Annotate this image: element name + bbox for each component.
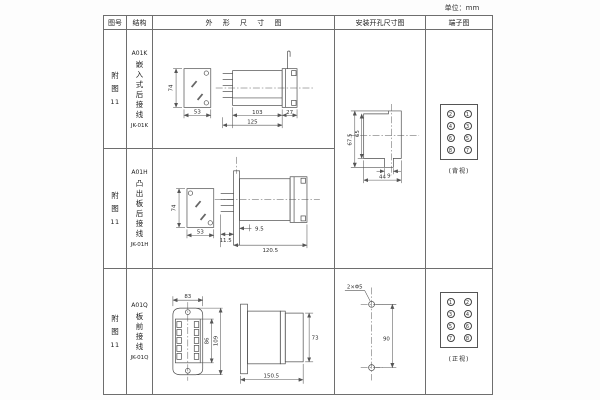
dim-outer-height: 67.5 [347,134,353,146]
dim-front-width: 53 [194,109,201,115]
structure-label: 嵌入式后接线 [135,60,144,120]
dim-front-width: 53 [197,229,204,235]
outline-drawing-a01h: 74 53 9.5 11.5 [153,149,334,268]
terminal-cell-front-wiring: 1 2 3 4 5 6 7 8 (正视) [426,269,492,394]
model-label: A01H [131,169,147,176]
fig-char: 图 [111,85,119,93]
fig-char: 附 [111,72,119,80]
terminal-cell-rear-wiring: 2 1 4 3 6 5 8 7 (背视) [426,30,492,269]
header-cell-fig-no: 图号 [104,16,127,30]
row-a01h-fig-cell: 附 图 11 [104,149,127,269]
unit-label: 单位：mm [428,3,496,13]
terminal-view-label: (背视) [449,166,470,175]
header-outline-label: 外 形 尺 寸 图 [206,18,286,28]
row-a01h-outline-cell: 74 53 9.5 11.5 [153,149,335,269]
terminal-pin: 4 [447,122,455,130]
header-cell-terminal: 端子图 [426,16,492,30]
terminal-pin: 3 [464,122,472,130]
terminal-pin: 4 [464,310,472,318]
dim-total-width: 44 [379,175,386,181]
terminal-view-label: (正视) [449,354,470,363]
row-a01q-structure-cell: A01Q 板前接线 JK-01Q [127,269,153,394]
fig-number: 附 图 11 [110,192,119,226]
code-label: JK-01H [131,242,149,248]
structure-label: 凸出板后接线 [135,179,144,239]
dim-front-height: 74 [172,204,178,211]
header-cell-outline: 外 形 尺 寸 图 [153,16,335,30]
terminal-pin: 7 [464,146,472,154]
dim-front-width: 83 [184,294,191,300]
dim-inner-height: 65 [355,130,361,137]
dim-front-height: 74 [169,84,175,91]
mounting-hole-drawing-rear: 67.5 65 9 44 [335,30,425,268]
terminal-pin: 1 [447,298,455,306]
terminal-pin: 2 [464,298,472,306]
dimension-table: 图号 结构 外 形 尺 寸 图 安装开孔尺寸图 端子图 附 图 11 A01K … [103,15,493,395]
terminal-pin: 7 [447,334,455,342]
fig-number: 附 图 11 [110,72,119,106]
terminal-pin: 2 [447,110,455,118]
dim-hole-spacing: 90 [383,336,390,342]
header-fig-no-label: 图号 [108,18,122,28]
code-label: JK-01Q [131,355,149,361]
header-structure-label: 结构 [133,18,147,28]
dim-total-length: 125 [247,120,257,126]
model-label: A01Q [131,302,147,309]
fig-char: 图 [111,205,119,213]
header-terminal-label: 端子图 [449,18,470,28]
code-label: JK-01K [131,123,148,129]
dim-side-height: 73 [312,335,319,341]
fig-number: 附 图 11 [110,315,119,349]
outline-drawing-a01q: 83 86 109 73 150.5 [153,269,334,394]
terminal-pin: 5 [447,322,455,330]
terminal-pin: 6 [464,322,472,330]
fig-char: 11 [110,341,119,349]
fig-char: 附 [111,315,119,323]
outline-drawing-a01k: 74 53 103 27 [153,30,334,148]
row-a01k-fig-cell: 附 图 11 [104,30,127,149]
terminal-pin: 3 [447,310,455,318]
terminal-pin: 1 [464,110,472,118]
dim-terminal-height: 86 [205,337,211,344]
fig-char: 11 [110,98,119,106]
row-a01k-structure-cell: A01K 嵌入式后接线 JK-01K [127,30,153,149]
model-label: A01K [132,50,148,57]
row-a01k-outline-cell: 74 53 103 27 [153,30,335,149]
row-a01q-fig-cell: 附 图 11 [104,269,127,394]
terminal-pin: 8 [464,334,472,342]
row-a01q-outline-cell: 83 86 109 73 150.5 [153,269,335,394]
header-mounting-label: 安装开孔尺寸图 [356,18,405,28]
dim-notch-width: 9 [387,174,391,180]
header-cell-mounting: 安装开孔尺寸图 [335,16,426,30]
dim-front-height: 109 [214,335,220,346]
header-cell-structure: 结构 [127,16,153,30]
terminal-pin: 5 [464,134,472,142]
mounting-cell-front-wiring: 2×Φ5 90 [335,269,426,394]
dim-stud-length: 9.5 [255,226,264,232]
terminal-pin: 6 [447,134,455,142]
structure-label: 板前接线 [135,312,144,352]
fig-char: 图 [111,328,119,336]
row-a01h-structure-cell: A01H 凸出板后接线 JK-01H [127,149,153,269]
dim-plate-offset: 11.5 [220,238,232,244]
fig-char: 附 [111,192,119,200]
dim-flange-length: 27 [286,110,293,116]
terminal-block-front: 1 2 3 4 5 6 7 8 [440,292,478,348]
mounting-hole-drawing-front: 2×Φ5 90 [335,269,425,394]
terminal-pin: 8 [447,146,455,154]
dim-total-length: 120.5 [262,248,278,254]
terminal-block-rear: 2 1 4 3 6 5 8 7 [440,104,478,160]
hole-spec-label: 2×Φ5 [347,284,363,290]
dim-body-length: 103 [252,110,263,116]
manual-page: 单位：mm 图号 结构 外 形 尺 寸 图 安装开孔尺寸图 端子图 附 图 11… [0,0,600,400]
dim-total-length: 150.5 [264,374,280,380]
fig-char: 11 [110,218,119,226]
mounting-cell-rear-wiring: 67.5 65 9 44 [335,30,426,269]
